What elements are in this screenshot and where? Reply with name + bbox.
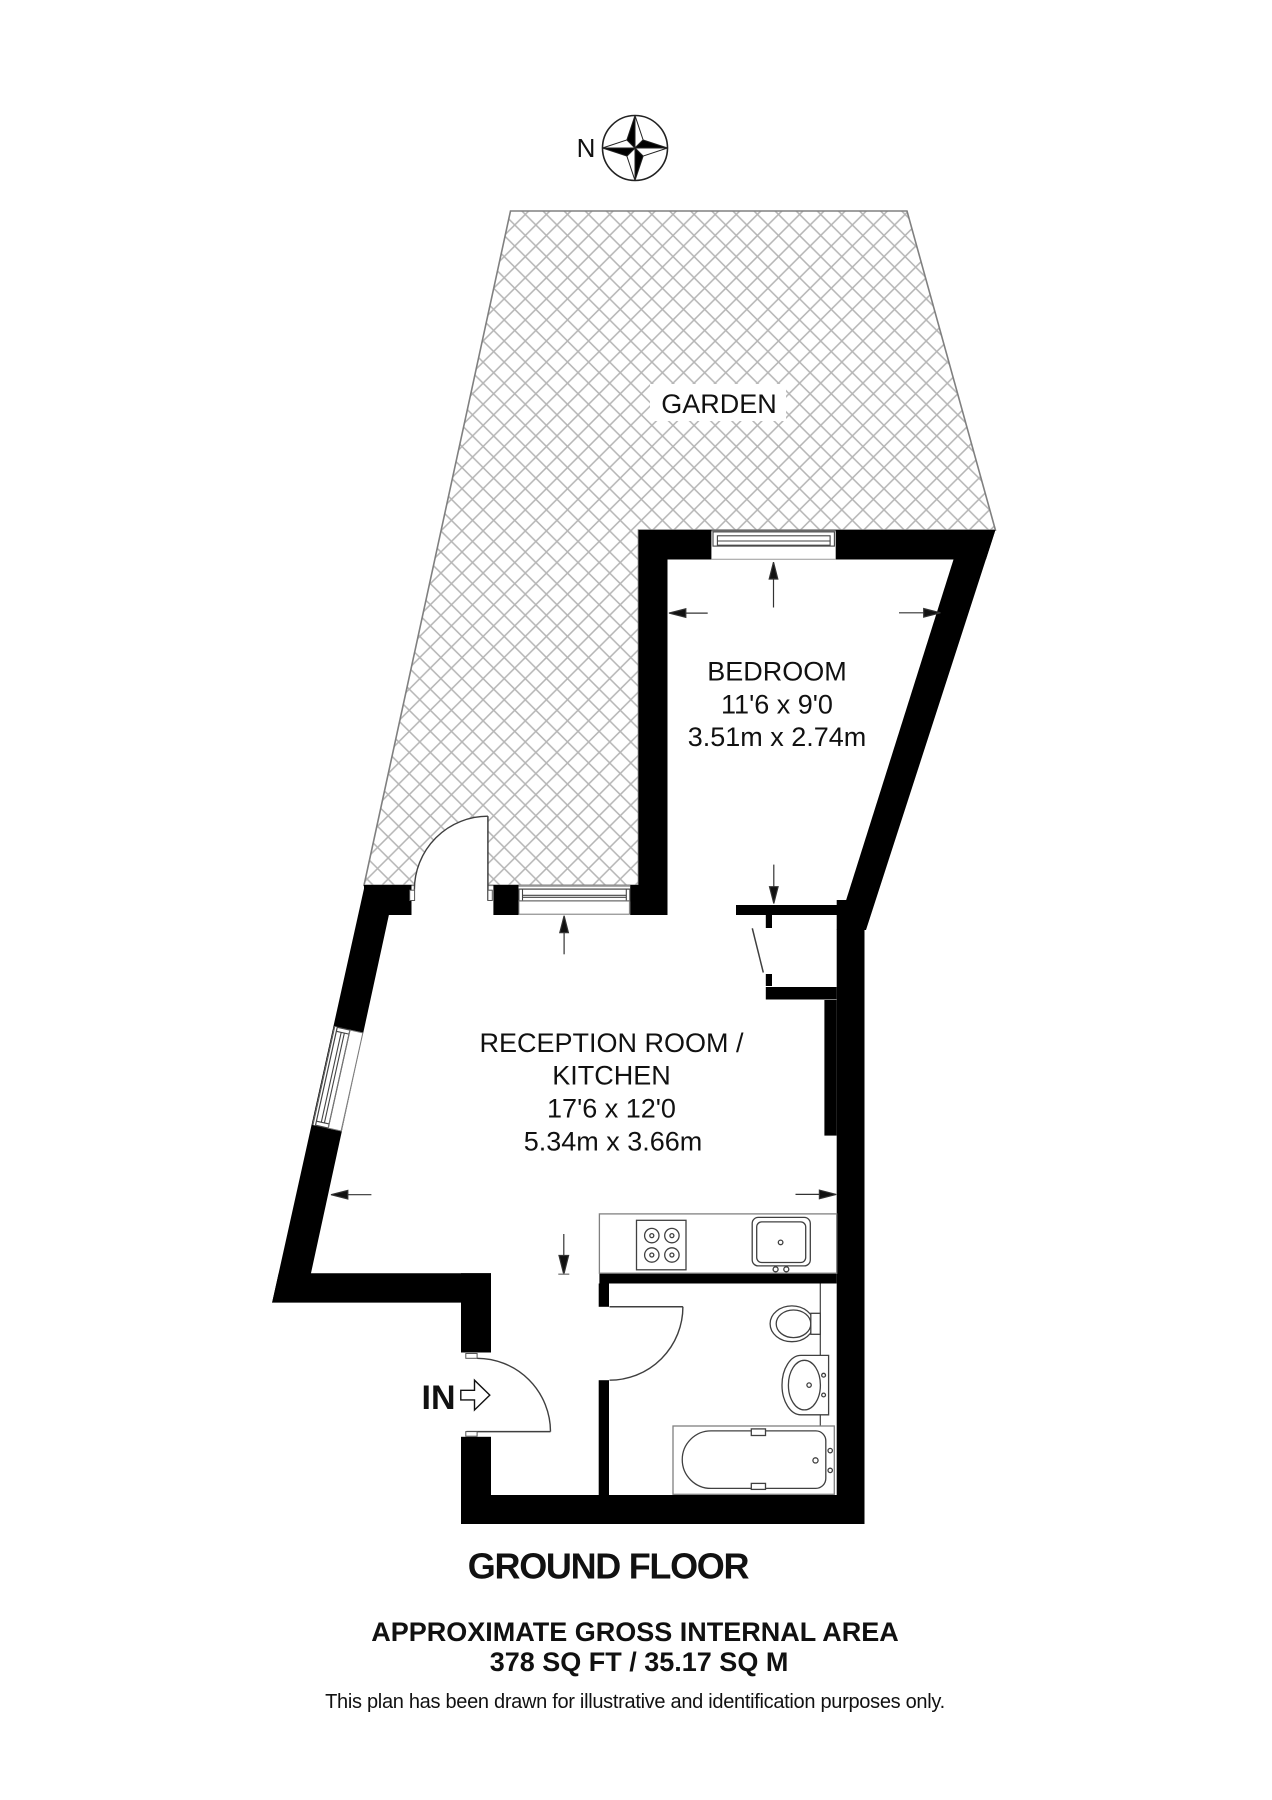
svg-text:APPROXIMATE GROSS INTERNAL ARE: APPROXIMATE GROSS INTERNAL AREA — [371, 1617, 899, 1647]
svg-text:5.34m x 3.66m: 5.34m x 3.66m — [524, 1127, 703, 1157]
svg-text:RECEPTION ROOM /: RECEPTION ROOM / — [479, 1028, 744, 1058]
svg-text:GROUND FLOOR: GROUND FLOOR — [468, 1546, 750, 1587]
svg-text:N: N — [577, 133, 596, 163]
svg-text:BEDROOM: BEDROOM — [707, 657, 847, 687]
svg-text:11'6 x 9'0: 11'6 x 9'0 — [721, 690, 833, 720]
svg-text:17'6 x 12'0: 17'6 x 12'0 — [547, 1094, 676, 1124]
svg-text:IN: IN — [422, 1379, 456, 1417]
svg-text:KITCHEN: KITCHEN — [552, 1061, 671, 1091]
svg-text:GARDEN: GARDEN — [661, 389, 777, 419]
svg-text:This plan has been drawn for i: This plan has been drawn for illustrativ… — [325, 1691, 945, 1713]
svg-text:3.51m x 2.74m: 3.51m x 2.74m — [688, 722, 867, 752]
svg-text:378 SQ FT / 35.17 SQ M: 378 SQ FT / 35.17 SQ M — [490, 1647, 789, 1677]
